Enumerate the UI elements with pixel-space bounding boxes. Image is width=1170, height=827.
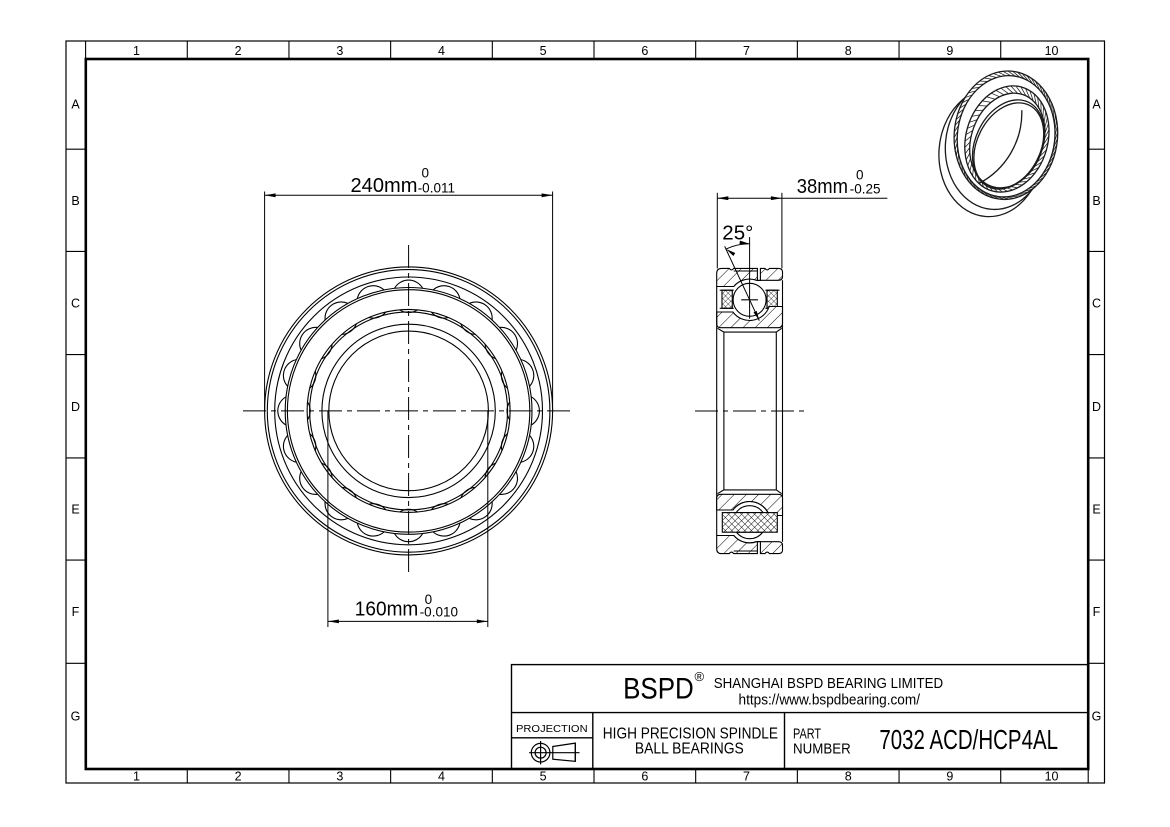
svg-text:7: 7 bbox=[743, 44, 750, 58]
svg-text:E: E bbox=[1092, 503, 1100, 517]
svg-text:25°: 25° bbox=[722, 222, 753, 245]
svg-text:6: 6 bbox=[641, 770, 648, 784]
svg-text:1: 1 bbox=[133, 44, 140, 58]
svg-text:B: B bbox=[71, 194, 79, 208]
svg-text:A: A bbox=[1092, 98, 1101, 112]
svg-text:BALL BEARINGS: BALL BEARINGS bbox=[635, 741, 744, 758]
svg-text:0: 0 bbox=[422, 166, 430, 181]
svg-text:A: A bbox=[71, 98, 80, 112]
svg-text:https://www.bspdbearing.com/: https://www.bspdbearing.com/ bbox=[739, 692, 921, 709]
svg-text:10: 10 bbox=[1045, 770, 1059, 784]
svg-text:4: 4 bbox=[438, 770, 445, 784]
svg-text:2: 2 bbox=[235, 44, 242, 58]
svg-text:9: 9 bbox=[946, 770, 953, 784]
svg-text:-0.011: -0.011 bbox=[418, 181, 455, 196]
svg-text:9: 9 bbox=[946, 44, 953, 58]
svg-text:38mm: 38mm bbox=[797, 175, 848, 198]
svg-text:-0.010: -0.010 bbox=[420, 605, 458, 620]
svg-text:C: C bbox=[1092, 297, 1101, 311]
svg-text:C: C bbox=[71, 297, 80, 311]
svg-text:®: ® bbox=[695, 669, 705, 684]
svg-text:E: E bbox=[71, 503, 79, 517]
svg-text:4: 4 bbox=[438, 44, 445, 58]
svg-text:B: B bbox=[1092, 194, 1100, 208]
svg-text:F: F bbox=[1093, 605, 1101, 619]
svg-text:BSPD: BSPD bbox=[623, 673, 694, 706]
svg-text:3: 3 bbox=[336, 44, 343, 58]
svg-text:160mm: 160mm bbox=[355, 597, 419, 620]
svg-text:1: 1 bbox=[133, 770, 140, 784]
svg-text:G: G bbox=[71, 710, 81, 724]
svg-text:8: 8 bbox=[845, 44, 852, 58]
svg-text:3: 3 bbox=[336, 770, 343, 784]
svg-text:2: 2 bbox=[235, 770, 242, 784]
svg-text:PROJECTION: PROJECTION bbox=[516, 723, 588, 735]
svg-text:10: 10 bbox=[1045, 44, 1059, 58]
svg-text:240mm: 240mm bbox=[351, 174, 418, 197]
svg-text:SHANGHAI BSPD BEARING LIMITED: SHANGHAI BSPD BEARING LIMITED bbox=[714, 675, 943, 692]
svg-text:G: G bbox=[1092, 710, 1102, 724]
svg-text:7: 7 bbox=[743, 770, 750, 784]
svg-text:D: D bbox=[1092, 400, 1101, 414]
svg-text:0: 0 bbox=[856, 168, 864, 183]
svg-text:6: 6 bbox=[641, 44, 648, 58]
svg-text:-0.25: -0.25 bbox=[850, 182, 881, 197]
svg-text:5: 5 bbox=[540, 770, 547, 784]
svg-text:8: 8 bbox=[845, 770, 852, 784]
svg-text:7032 ACD/HCP4AL: 7032 ACD/HCP4AL bbox=[879, 724, 1058, 755]
svg-text:F: F bbox=[72, 605, 80, 619]
svg-text:5: 5 bbox=[540, 44, 547, 58]
svg-text:D: D bbox=[71, 400, 80, 414]
svg-text:NUMBER: NUMBER bbox=[793, 741, 851, 758]
